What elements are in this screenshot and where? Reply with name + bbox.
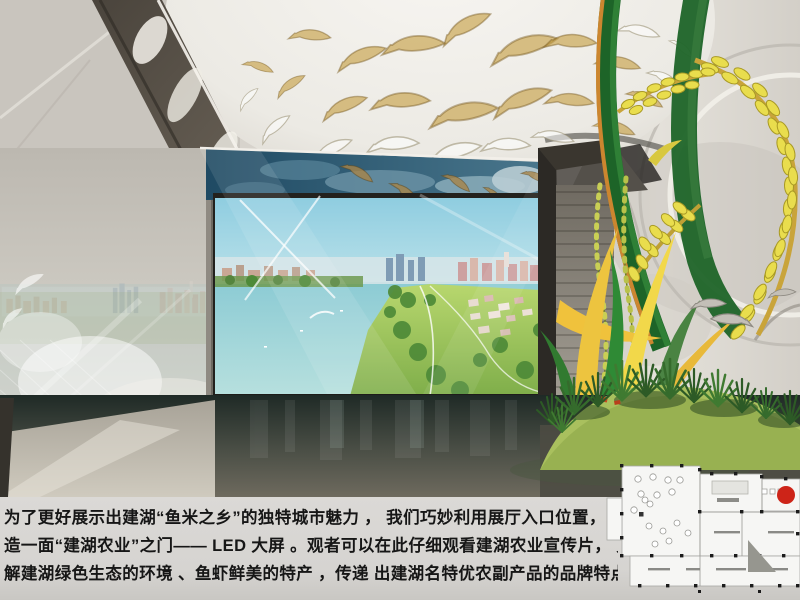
floor-plan-stage	[712, 481, 748, 494]
exhibition-hall-rendering	[0, 0, 800, 497]
entrance-location-marker	[777, 486, 795, 504]
floor-plan-inset	[600, 440, 800, 600]
rendering-art	[0, 0, 800, 497]
design-presentation-page: 为了更好展示出建湖“鱼米之乡”的独特城市魅力 ， 我们巧妙利用展厅入口位置， 创…	[0, 0, 800, 600]
caption-line-1: 为了更好展示出建湖“鱼米之乡”的独特城市魅力 ， 我们巧妙利用展厅入口位置， 创…	[4, 504, 618, 532]
caption-line-3: 解建湖绿色生态的环境 、鱼虾鲜美的特产 ，传递 出建湖名特优农副产品的品牌特点。	[4, 560, 618, 588]
caption-line-2: 造一面“建湖农业”之门—— LED 大屏 。观者可以在此仔细观看建湖农业宣传片，…	[4, 532, 618, 560]
